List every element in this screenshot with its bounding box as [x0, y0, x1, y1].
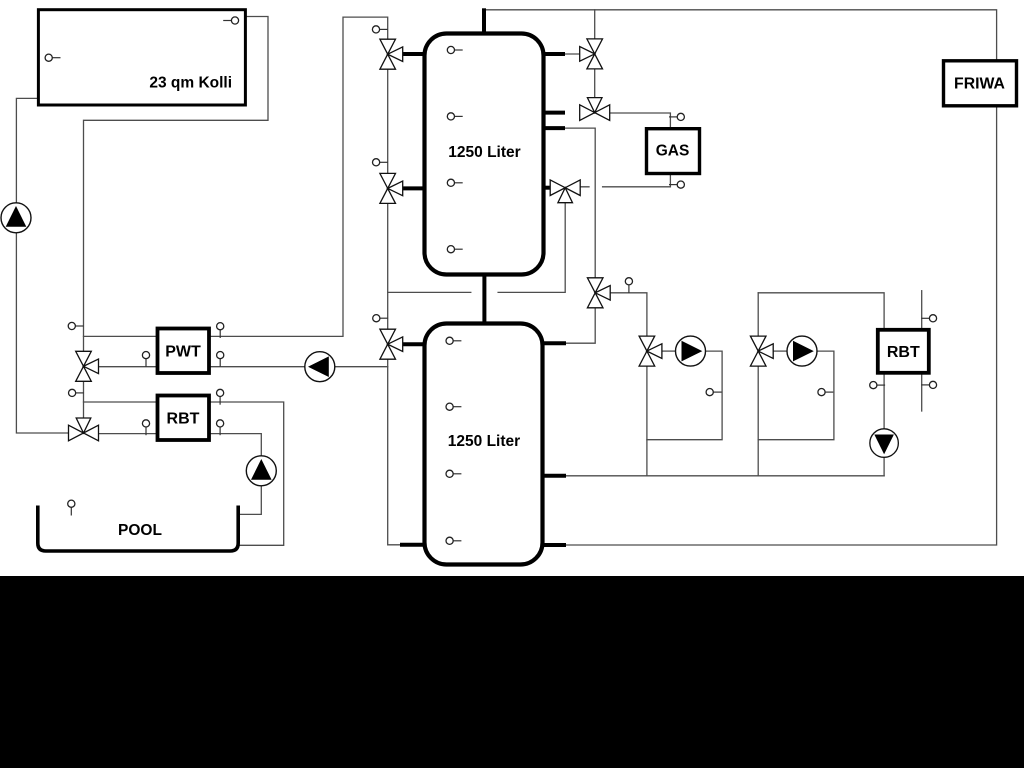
svg-text:1250 Liter: 1250 Liter — [448, 144, 520, 161]
svg-text:POOL: POOL — [118, 522, 162, 539]
svg-text:FRIWA: FRIWA — [954, 76, 1005, 93]
svg-text:1250 Liter: 1250 Liter — [448, 433, 520, 450]
svg-text:RBT: RBT — [887, 344, 920, 361]
svg-text:GAS: GAS — [656, 143, 690, 160]
svg-text:PWT: PWT — [165, 344, 201, 361]
svg-text:23 qm Kolli: 23 qm Kolli — [149, 75, 232, 92]
svg-text:RBT: RBT — [167, 411, 200, 428]
